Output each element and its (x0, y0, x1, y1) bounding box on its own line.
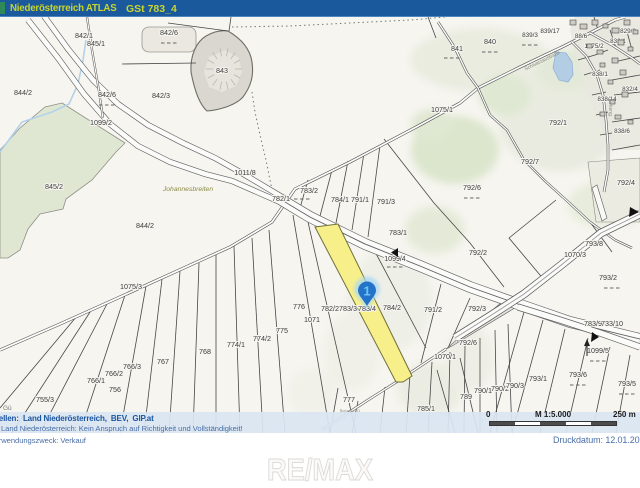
svg-text:1071: 1071 (304, 315, 320, 324)
svg-text:774/2: 774/2 (253, 334, 271, 343)
svg-text:844/2: 844/2 (136, 221, 154, 230)
svg-text:Gü: Gü (3, 405, 12, 412)
svg-text:841: 841 (451, 44, 463, 53)
svg-text:842/6: 842/6 (160, 28, 178, 37)
svg-text:845/1: 845/1 (87, 39, 105, 48)
svg-text:783/1: 783/1 (389, 228, 407, 237)
svg-text:1099/2: 1099/2 (90, 118, 112, 127)
svg-text:776: 776 (293, 302, 305, 311)
svg-text:790/1: 790/1 (474, 386, 492, 395)
svg-text:791/1: 791/1 (351, 195, 369, 204)
svg-text:792/6: 792/6 (459, 338, 477, 347)
svg-text:792/7: 792/7 (521, 157, 539, 166)
svg-text:792/3: 792/3 (468, 304, 486, 313)
svg-text:793/6: 793/6 (569, 370, 587, 379)
svg-text:733/10: 733/10 (601, 319, 623, 328)
svg-text:782/1: 782/1 (272, 194, 290, 203)
svg-text:784/1: 784/1 (331, 195, 349, 204)
svg-text:839/17: 839/17 (540, 28, 560, 35)
svg-text:1075/1: 1075/1 (431, 105, 453, 114)
svg-text:1070/1: 1070/1 (434, 352, 456, 361)
svg-text:844/2: 844/2 (14, 88, 32, 97)
svg-text:1075/3: 1075/3 (120, 282, 142, 291)
svg-text:793/2: 793/2 (599, 273, 617, 282)
svg-text:792/6: 792/6 (463, 183, 481, 192)
svg-text:790/3: 790/3 (506, 381, 524, 390)
svg-text:766/2: 766/2 (105, 369, 123, 378)
svg-text:793/5: 793/5 (618, 379, 636, 388)
svg-text:791/2: 791/2 (424, 305, 442, 314)
svg-text:783/2: 783/2 (300, 186, 318, 195)
svg-text:767: 767 (157, 357, 169, 366)
svg-text:793/1: 793/1 (529, 374, 547, 383)
svg-text:842/3: 842/3 (152, 91, 170, 100)
svg-text:766/1: 766/1 (87, 376, 105, 385)
svg-text:766/3: 766/3 (123, 362, 141, 371)
svg-text:843: 843 (216, 66, 228, 75)
svg-text:791/3: 791/3 (377, 197, 395, 206)
svg-text:777: 777 (343, 395, 355, 404)
svg-text:839/3: 839/3 (522, 32, 538, 39)
svg-text:838/1: 838/1 (592, 71, 608, 78)
svg-text:1099/4: 1099/4 (384, 256, 406, 263)
svg-text:845/2: 845/2 (45, 182, 63, 191)
svg-text:1070/3: 1070/3 (564, 250, 586, 259)
svg-text:789: 789 (460, 392, 472, 401)
svg-text:774/1: 774/1 (227, 340, 245, 349)
svg-text:783/3: 783/3 (339, 304, 357, 313)
svg-text:755/3: 755/3 (36, 395, 54, 404)
svg-text:838/6: 838/6 (614, 128, 630, 135)
svg-text:792/2: 792/2 (469, 248, 487, 257)
svg-text:784/2: 784/2 (383, 303, 401, 312)
svg-text:1099/5: 1099/5 (587, 346, 609, 355)
svg-text:756: 756 (109, 385, 121, 394)
svg-text:792/1: 792/1 (549, 118, 567, 127)
svg-text:1: 1 (363, 284, 370, 299)
svg-text:768: 768 (199, 347, 211, 356)
svg-text:793/8: 793/8 (585, 239, 603, 248)
svg-text:783/9: 783/9 (584, 319, 602, 328)
svg-text:Johannesbreiten: Johannesbreiten (162, 186, 213, 193)
svg-text:775: 775 (276, 326, 288, 335)
svg-text:792/4: 792/4 (617, 178, 635, 187)
svg-text:88/6: 88/6 (575, 33, 588, 40)
svg-text:840: 840 (484, 37, 496, 46)
svg-text:782/2: 782/2 (321, 304, 339, 313)
svg-text:842/6: 842/6 (98, 90, 116, 99)
svg-text:1011/8: 1011/8 (234, 168, 255, 177)
